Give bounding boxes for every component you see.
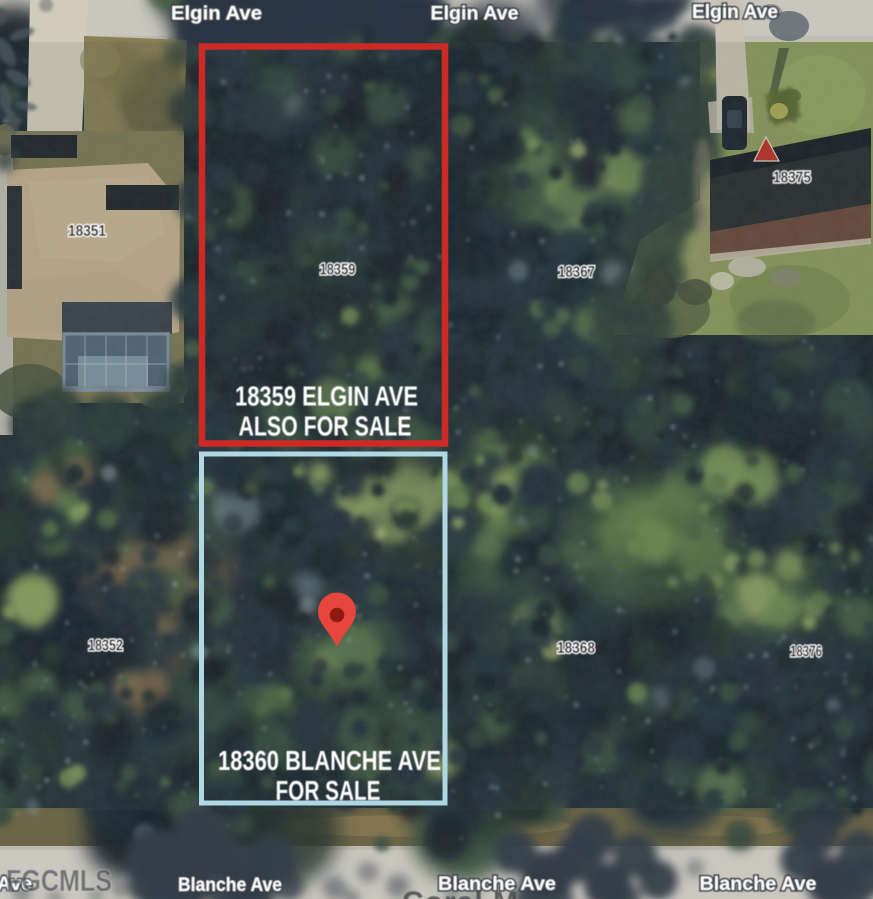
svg-text:Coral M: Coral M <box>402 886 519 899</box>
svg-text:FOR SALE: FOR SALE <box>276 775 381 806</box>
svg-text:Blanche Ave: Blanche Ave <box>178 874 282 896</box>
svg-text:18359: 18359 <box>320 262 356 279</box>
svg-text:Elgin Ave: Elgin Ave <box>431 3 519 25</box>
svg-text:18368: 18368 <box>557 640 595 657</box>
svg-text:Elgin Ave: Elgin Ave <box>692 1 778 23</box>
svg-text:ALSO FOR SALE: ALSO FOR SALE <box>239 411 412 442</box>
svg-text:18375: 18375 <box>773 170 811 187</box>
svg-text:18367: 18367 <box>558 264 595 281</box>
svg-text:18360 BLANCHE AVE: 18360 BLANCHE AVE <box>218 745 441 776</box>
svg-text:Blanche Ave: Blanche Ave <box>700 873 817 895</box>
svg-text:18376: 18376 <box>790 644 822 661</box>
svg-text:18351: 18351 <box>68 223 106 240</box>
svg-text:18352: 18352 <box>88 638 123 655</box>
svg-text:FGCMLS: FGCMLS <box>6 863 112 898</box>
svg-text:Elgin Ave: Elgin Ave <box>171 3 262 25</box>
svg-text:18359 ELGIN AVE: 18359 ELGIN AVE <box>235 381 418 412</box>
